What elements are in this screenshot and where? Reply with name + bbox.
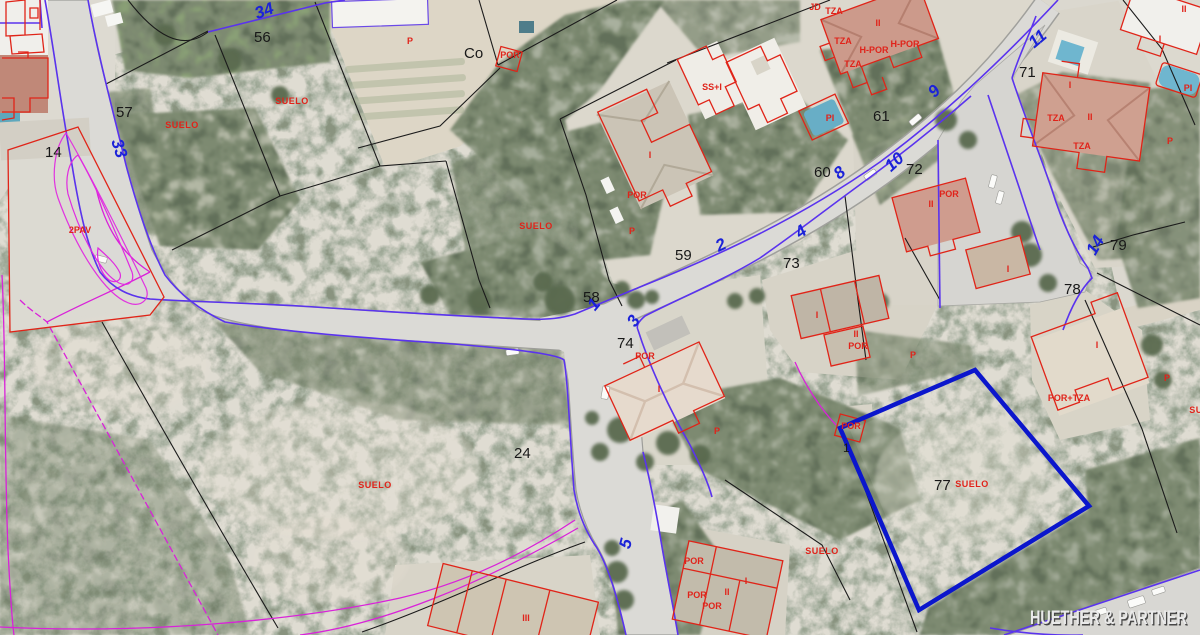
svg-text:I: I bbox=[816, 310, 819, 320]
svg-text:PI: PI bbox=[826, 113, 835, 123]
svg-text:72: 72 bbox=[906, 161, 923, 178]
svg-text:78: 78 bbox=[1064, 281, 1081, 298]
svg-text:P: P bbox=[714, 426, 720, 436]
svg-text:II: II bbox=[875, 18, 880, 28]
svg-text:56: 56 bbox=[254, 29, 271, 46]
svg-text:POR: POR bbox=[848, 341, 868, 351]
svg-text:74: 74 bbox=[617, 335, 634, 352]
svg-text:POR: POR bbox=[500, 50, 520, 60]
svg-text:I: I bbox=[658, 384, 661, 394]
svg-text:POR: POR bbox=[687, 590, 707, 600]
svg-text:H-POR: H-POR bbox=[860, 45, 890, 55]
svg-text:57: 57 bbox=[116, 104, 133, 121]
svg-text:P: P bbox=[1167, 136, 1173, 146]
svg-text:II: II bbox=[853, 329, 858, 339]
svg-text:POR: POR bbox=[939, 189, 959, 199]
svg-text:SUELO: SUELO bbox=[165, 120, 199, 130]
svg-text:JD: JD bbox=[809, 2, 821, 12]
svg-text:P: P bbox=[407, 36, 413, 46]
svg-text:II: II bbox=[928, 199, 933, 209]
svg-text:SUELO: SUELO bbox=[955, 479, 989, 489]
svg-text:H-POR: H-POR bbox=[891, 39, 921, 49]
svg-text:79: 79 bbox=[1110, 237, 1127, 254]
svg-text:P: P bbox=[910, 350, 916, 360]
svg-text:P: P bbox=[629, 226, 635, 236]
svg-text:59: 59 bbox=[675, 247, 692, 264]
svg-text:71: 71 bbox=[1019, 64, 1036, 81]
svg-text:POR: POR bbox=[702, 601, 722, 611]
svg-text:TZA: TZA bbox=[844, 59, 862, 69]
svg-text:P: P bbox=[1164, 373, 1170, 383]
svg-text:SUELO: SUELO bbox=[805, 546, 839, 556]
svg-text:SUELO: SUELO bbox=[519, 221, 553, 231]
svg-text:I: I bbox=[649, 150, 652, 160]
svg-text:I: I bbox=[745, 576, 748, 586]
svg-text:14: 14 bbox=[45, 144, 62, 161]
svg-text:II: II bbox=[724, 587, 729, 597]
svg-text:POR: POR bbox=[684, 556, 704, 566]
svg-text:SUELO: SUELO bbox=[275, 96, 309, 106]
svg-text:I: I bbox=[1159, 34, 1162, 44]
svg-text:61: 61 bbox=[873, 108, 890, 125]
svg-text:II: II bbox=[1181, 4, 1186, 14]
svg-text:III: III bbox=[522, 613, 530, 623]
svg-text:73: 73 bbox=[783, 255, 800, 272]
svg-text:2PAV: 2PAV bbox=[69, 225, 91, 235]
svg-text:II: II bbox=[1087, 112, 1092, 122]
svg-text:Co: Co bbox=[464, 45, 483, 62]
svg-text:SU: SU bbox=[1189, 405, 1200, 415]
svg-text:TZA: TZA bbox=[834, 36, 852, 46]
svg-text:I: I bbox=[1096, 340, 1099, 350]
svg-text:I: I bbox=[1007, 264, 1010, 274]
svg-text:I: I bbox=[1069, 80, 1072, 90]
svg-text:HUETHER & PARTNER: HUETHER & PARTNER bbox=[1030, 608, 1187, 629]
svg-text:TZA: TZA bbox=[825, 6, 843, 16]
svg-text:TZA: TZA bbox=[1047, 113, 1065, 123]
svg-text:SUELO: SUELO bbox=[358, 480, 392, 490]
svg-text:24: 24 bbox=[514, 445, 531, 462]
svg-text:POR: POR bbox=[627, 190, 647, 200]
svg-text:PI: PI bbox=[1184, 83, 1193, 93]
svg-text:POR+TZA: POR+TZA bbox=[1048, 393, 1091, 403]
svg-text:60: 60 bbox=[814, 164, 831, 181]
svg-text:77: 77 bbox=[934, 477, 951, 494]
svg-text:1: 1 bbox=[843, 441, 850, 455]
svg-text:POR: POR bbox=[635, 351, 655, 361]
svg-text:POR: POR bbox=[841, 421, 861, 431]
svg-text:SS+I: SS+I bbox=[702, 82, 722, 92]
svg-text:TZA: TZA bbox=[1073, 141, 1091, 151]
